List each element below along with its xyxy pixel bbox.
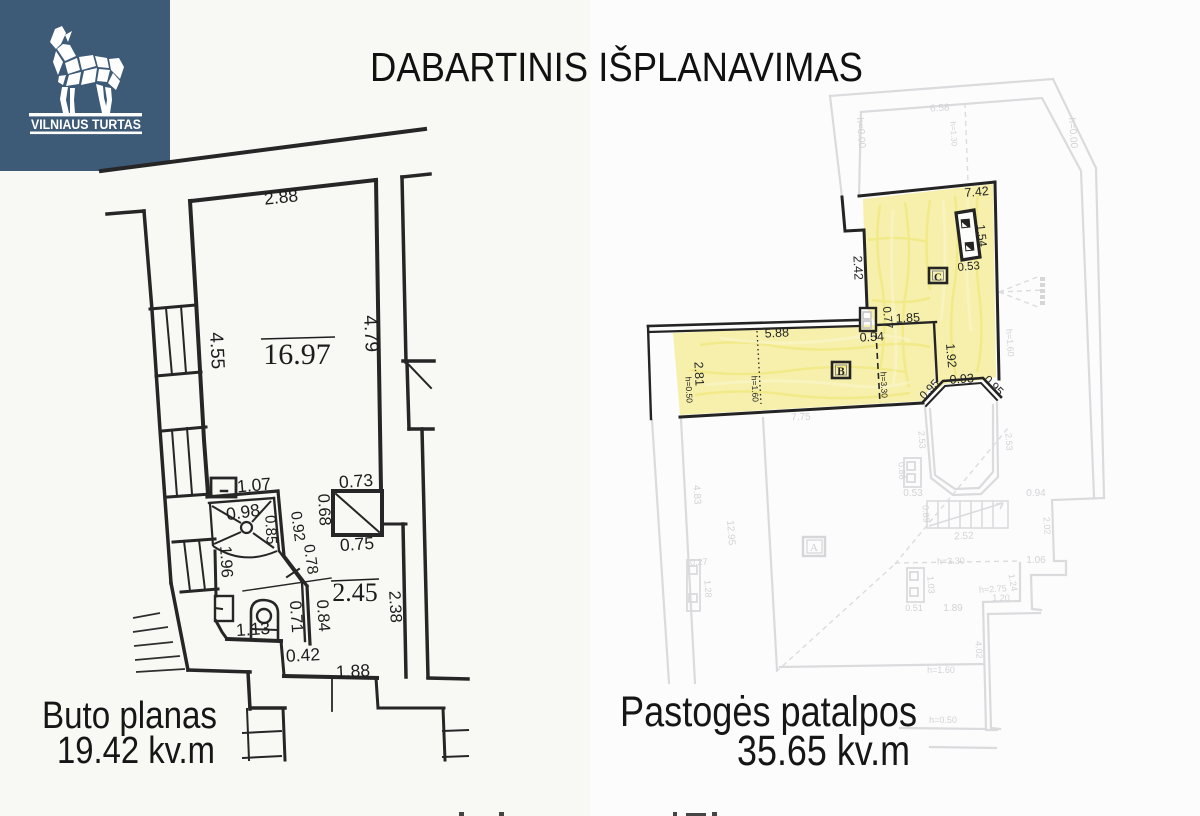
svg-text:0.88: 0.88	[896, 462, 907, 480]
svg-text:1.06: 1.06	[1026, 555, 1046, 566]
svg-text:h=1.30: h=1.30	[948, 121, 959, 147]
svg-text:0.54: 0.54	[859, 329, 884, 344]
svg-text:12.95: 12.95	[724, 520, 737, 546]
svg-text:0.53: 0.53	[957, 260, 980, 274]
svg-text:0.85: 0.85	[261, 515, 280, 545]
svg-text:h=1.60: h=1.60	[1004, 329, 1016, 357]
svg-text:5.88: 5.88	[764, 325, 789, 340]
svg-text:0.68: 0.68	[314, 493, 334, 526]
svg-text:h=0.00: h=0.00	[1066, 117, 1079, 149]
svg-text:2.38: 2.38	[385, 590, 405, 623]
svg-text:0.27: 0.27	[690, 557, 708, 568]
svg-text:0.78: 0.78	[300, 543, 321, 575]
svg-text:2.53: 2.53	[916, 431, 927, 449]
svg-text:19.42 kv.m: 19.42 kv.m	[57, 730, 215, 772]
svg-text:1.13: 1.13	[235, 618, 270, 640]
svg-text:C: C	[934, 272, 942, 284]
svg-text:0.42: 0.42	[285, 644, 320, 666]
svg-text:A: A	[810, 542, 818, 554]
svg-text:0.98: 0.98	[225, 500, 262, 525]
svg-text:0.89: 0.89	[920, 505, 931, 523]
svg-text:1.92: 1.92	[943, 343, 959, 369]
svg-text:1.54: 1.54	[974, 224, 988, 248]
svg-text:2.02: 2.02	[1041, 517, 1052, 535]
svg-text:2.53: 2.53	[1003, 433, 1014, 451]
svg-text:6.58: 6.58	[930, 102, 951, 114]
svg-text:1.88: 1.88	[335, 660, 370, 682]
svg-text:0.53: 0.53	[903, 488, 923, 499]
svg-text:0.94: 0.94	[1026, 488, 1046, 499]
svg-text:0.75: 0.75	[339, 533, 374, 555]
svg-text:35.65 kv.m: 35.65 kv.m	[737, 727, 910, 775]
svg-text:7.42: 7.42	[964, 184, 990, 200]
svg-text:B: B	[837, 366, 845, 378]
svg-text:0.71: 0.71	[286, 600, 306, 633]
svg-text:7.75: 7.75	[791, 412, 811, 424]
svg-text:4.55: 4.55	[205, 332, 228, 370]
svg-text:1.03: 1.03	[925, 576, 936, 594]
svg-text:1.28: 1.28	[702, 580, 713, 598]
svg-text:h=3.30: h=3.30	[937, 556, 965, 567]
svg-text:0.51: 0.51	[905, 603, 923, 613]
svg-text:h=3.30: h=3.30	[878, 371, 889, 398]
svg-text:1.89: 1.89	[943, 603, 963, 614]
svg-text:h=1.60: h=1.60	[927, 665, 955, 675]
svg-text:h=1.60: h=1.60	[749, 375, 760, 402]
svg-text:0.77: 0.77	[880, 306, 894, 330]
svg-text:1.24: 1.24	[1007, 573, 1020, 592]
svg-text:DABARTINIS IŠPLANAVIMAS: DABARTINIS IŠPLANAVIMAS	[370, 44, 863, 90]
svg-text:VILNIAUS TURTAS: VILNIAUS TURTAS	[31, 117, 141, 132]
svg-text:2.52: 2.52	[954, 530, 974, 542]
svg-text:2.88: 2.88	[263, 185, 299, 208]
svg-text:h=0.00: h=0.00	[854, 117, 867, 149]
svg-text:0.92: 0.92	[287, 510, 308, 542]
svg-text:4.02: 4.02	[973, 641, 984, 659]
svg-text:4.83: 4.83	[690, 485, 702, 506]
svg-text:1.07: 1.07	[236, 474, 272, 497]
svg-text:0.93: 0.93	[949, 371, 974, 387]
svg-text:1.85: 1.85	[895, 310, 920, 325]
svg-text:0.84: 0.84	[313, 599, 333, 632]
svg-text:1.96: 1.96	[216, 545, 236, 578]
svg-text:2.45: 2.45	[332, 578, 378, 607]
svg-text:1.20: 1.20	[992, 593, 1010, 603]
svg-text:16.97: 16.97	[263, 338, 331, 371]
svg-text:0.73: 0.73	[338, 470, 373, 492]
svg-text:h=0.50: h=0.50	[683, 376, 694, 403]
svg-text:4.79: 4.79	[359, 315, 382, 353]
svg-text:2.42: 2.42	[850, 255, 865, 280]
svg-text:h=0.50: h=0.50	[929, 715, 957, 725]
